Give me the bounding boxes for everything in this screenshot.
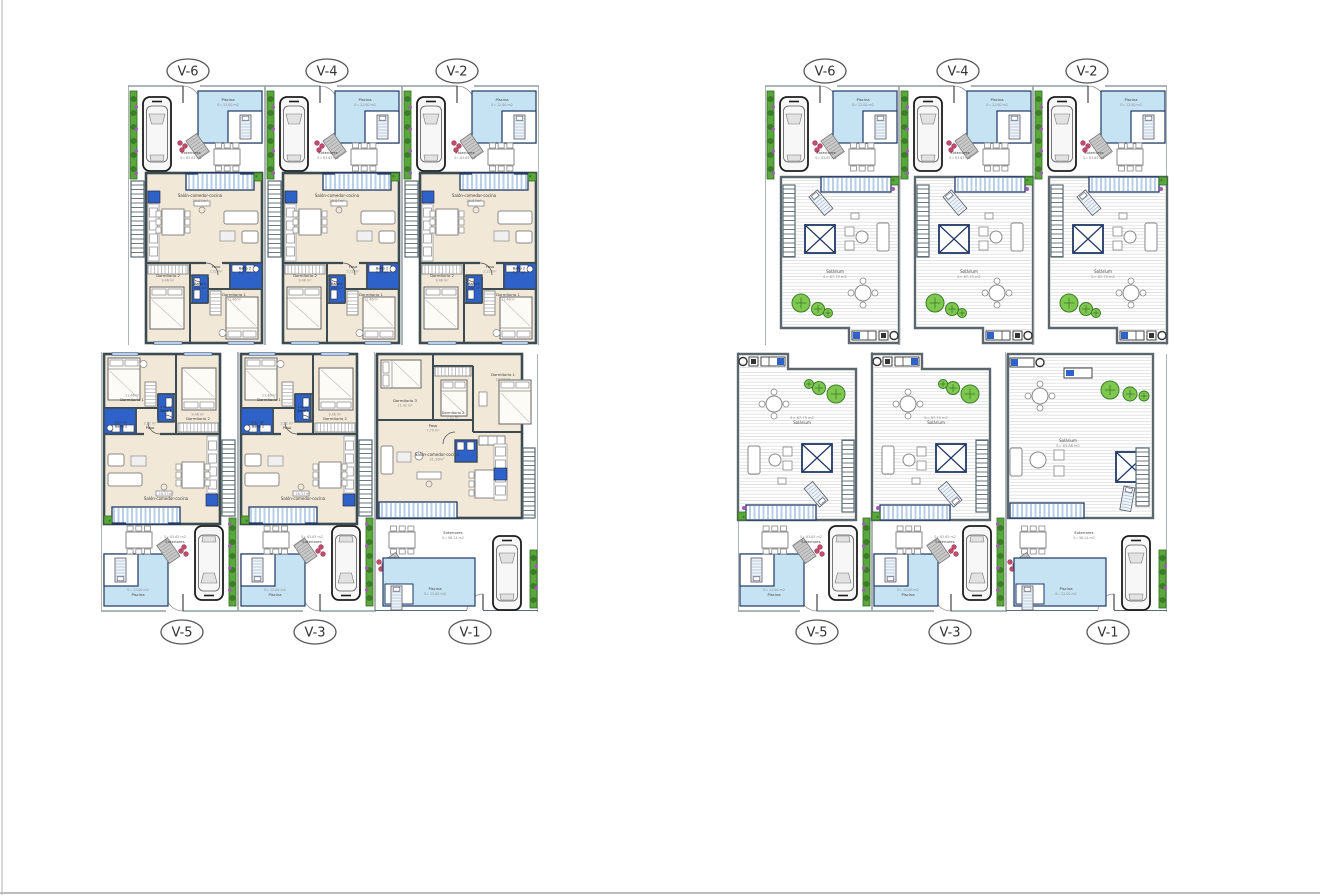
svg-text:2.17 m²: 2.17 m² (252, 421, 265, 425)
svg-text:S= 83.65 m2: S= 83.65 m2 (317, 156, 339, 160)
flowers-icon (179, 545, 189, 557)
pool (104, 554, 168, 606)
svg-text:Dormitorio 2: Dormitorio 2 (323, 416, 347, 421)
svg-text:S= 67.75 m2: S= 67.75 m2 (1091, 275, 1115, 279)
svg-text:2.17 m²: 2.17 m² (513, 271, 526, 275)
villa-V-5-solarium-plan: PiscinaS= 12.00 m2ExterioresS= 83.65 m2S… (738, 352, 872, 611)
bed-icon (499, 380, 531, 424)
hedge-plants (365, 518, 373, 606)
svg-text:Solárium: Solárium (927, 420, 945, 425)
villa-label-V-6-roof: V-6 (804, 59, 846, 83)
deck-band (955, 177, 1025, 192)
villa-label-V-2-roof: V-2 (1066, 59, 1108, 83)
svg-text:S= 67.75 m2: S= 67.75 m2 (924, 416, 948, 420)
planter-icon (241, 516, 249, 524)
svg-text:S= 12.00 m2: S= 12.00 m2 (354, 103, 376, 107)
svg-text:2.56 m²: 2.56 m² (331, 286, 344, 290)
svg-text:Dormitorio 2: Dormitorio 2 (442, 411, 465, 415)
svg-text:S= 12.00 m2: S= 12.00 m2 (1120, 103, 1142, 107)
svg-text:S= 12.00 m2: S= 12.00 m2 (127, 588, 149, 592)
svg-text:Paso: Paso (146, 425, 155, 430)
planter-icon (1025, 177, 1033, 185)
plant-icon (1060, 294, 1078, 312)
pergola-icon (936, 444, 966, 472)
svg-text:S= 12.00 m2: S= 12.00 m2 (264, 588, 286, 592)
svg-text:Paso: Paso (429, 423, 438, 428)
outdoor-dining-table (849, 143, 875, 171)
svg-text:11.42 m²: 11.42 m² (397, 404, 413, 408)
bed-icon (381, 360, 421, 388)
svg-text:Solárium: Solárium (960, 269, 978, 274)
villa-label-V-1-roof: V-1 (1087, 620, 1129, 644)
svg-text:Solárium: Solárium (1094, 269, 1112, 274)
stairs-icon (523, 448, 535, 518)
svg-text:26.57m²: 26.57m² (295, 492, 311, 496)
svg-text:2.22 m²: 2.22 m² (210, 270, 224, 274)
svg-text:Baño 2: Baño 2 (115, 425, 127, 429)
svg-text:2.22 m²: 2.22 m² (281, 422, 295, 426)
plant-icon (813, 382, 826, 395)
svg-text:S= 83.88 m2: S= 83.88 m2 (1056, 444, 1080, 448)
car-icon (780, 97, 808, 171)
svg-text:S= 12.00 m2: S= 12.00 m2 (897, 588, 919, 592)
svg-text:V-2: V-2 (1076, 65, 1097, 80)
floor-plan-sheet: PiscinaS= 12.00 m2ExterioresS= 83.65 m2S… (0, 0, 1320, 895)
hedge-plants (1035, 91, 1043, 179)
deck-band (249, 507, 317, 524)
svg-text:Exteriores: Exteriores (1084, 150, 1103, 155)
bed-icon (287, 287, 321, 329)
hedge-plants (1159, 550, 1167, 608)
svg-text:Exteriores: Exteriores (1074, 530, 1093, 535)
svg-text:S= 67.75 m2: S= 67.75 m2 (957, 275, 981, 279)
svg-text:12.47 m²: 12.47 m² (495, 378, 511, 382)
svg-text:Piscina: Piscina (901, 592, 914, 597)
svg-text:Dormitorio 1: Dormitorio 1 (222, 292, 246, 297)
svg-text:9.46 m²: 9.46 m² (162, 279, 176, 283)
car-icon (1048, 97, 1076, 171)
flowers-icon (815, 545, 825, 557)
svg-text:2.56 m²: 2.56 m² (468, 286, 481, 290)
villa-V-4-floor-plan: PiscinaS= 12.00 m2ExterioresS= 83.65 m2S… (265, 86, 402, 345)
villa-V-4-solarium-plan: PiscinaS= 12.00 m2ExterioresS= 83.65 m2S… (899, 86, 1033, 345)
hedge-plants (901, 91, 909, 179)
svg-text:S= 83.65 m2: S= 83.65 m2 (1083, 156, 1105, 160)
villa-label-V-3-floor: V-3 (294, 620, 336, 644)
svg-text:Exteriores: Exteriores (165, 539, 184, 544)
deck-band (379, 502, 457, 518)
car-icon (280, 97, 308, 171)
planter-icon (738, 512, 746, 520)
svg-text:Piscina: Piscina (358, 97, 371, 102)
svg-text:S= 83.65 m2: S= 83.65 m2 (934, 535, 956, 539)
svg-text:S= 98.24 m2: S= 98.24 m2 (442, 536, 464, 540)
svg-text:Salón-comedor-cocina: Salón-comedor-cocina (178, 193, 223, 198)
svg-text:Salón-comedor-cocina: Salón-comedor-cocina (452, 193, 497, 198)
hedge-plants (530, 550, 538, 608)
planter-icon (391, 173, 399, 181)
svg-text:Dormitorio 2: Dormitorio 2 (293, 273, 317, 278)
car-icon (332, 526, 360, 600)
svg-text:Piscina: Piscina (990, 97, 1003, 102)
svg-text:S= 83.65 m2: S= 83.65 m2 (164, 535, 186, 539)
stairs-icon (1136, 448, 1149, 506)
outdoor-dining-table (488, 143, 514, 171)
planter-icon (1159, 177, 1167, 185)
deck-band (746, 505, 816, 520)
outdoor-dining-table (126, 526, 152, 554)
stairs-icon (131, 181, 144, 257)
svg-text:7.51 m²: 7.51 m² (447, 416, 460, 420)
svg-text:2.56 m²: 2.56 m² (194, 286, 207, 290)
plant-icon (961, 385, 979, 403)
stairs-icon (783, 185, 795, 257)
svg-text:11.46m²: 11.46m² (125, 394, 140, 398)
svg-text:V-4: V-4 (947, 65, 968, 80)
car-icon (417, 97, 445, 171)
stairs-icon (268, 181, 281, 257)
svg-text:V-6: V-6 (814, 65, 835, 80)
svg-text:Exteriores: Exteriores (801, 539, 820, 544)
car-icon (143, 97, 171, 171)
hedge-plants (130, 91, 138, 179)
svg-text:Exteriores: Exteriores (816, 150, 835, 155)
plant-icon (958, 309, 967, 318)
svg-text:Piscina: Piscina (221, 97, 234, 102)
pergola-icon (802, 444, 832, 472)
svg-text:S= 12.00 m2: S= 12.00 m2 (763, 588, 785, 592)
hedge-plants (996, 518, 1004, 606)
flowers-icon (316, 545, 326, 557)
svg-text:Piscina: Piscina (268, 592, 281, 597)
svg-text:Salón-comedor-cocina: Salón-comedor-cocina (144, 496, 189, 501)
sun-lounger-icon (252, 558, 263, 582)
svg-text:S= 12.00 m2: S= 12.00 m2 (986, 103, 1008, 107)
svg-text:Dormitorio 2: Dormitorio 2 (186, 416, 210, 421)
svg-text:S= 83.65 m2: S= 83.65 m2 (180, 156, 202, 160)
villa-V-6-floor-plan: PiscinaS= 12.00 m2ExterioresS= 83.65 m2S… (128, 86, 265, 345)
svg-text:S= 67.75 m2: S= 67.75 m2 (823, 275, 847, 279)
planter-icon (104, 516, 112, 524)
svg-text:Dormitorio 1: Dormitorio 1 (359, 292, 383, 297)
svg-text:2.17 m²: 2.17 m² (376, 271, 389, 275)
deck-band (1089, 177, 1159, 192)
outdoor-dining-table (263, 526, 289, 554)
sun-lounger-icon (391, 586, 402, 610)
pergola-icon (939, 225, 969, 253)
deck-band (821, 177, 891, 192)
plant-icon (1123, 387, 1137, 401)
svg-text:Piscina: Piscina (428, 586, 441, 591)
svg-text:31.26m²: 31.26m² (429, 458, 445, 462)
plant-icon (812, 303, 825, 316)
car-icon (829, 526, 857, 600)
stairs-icon (976, 440, 988, 512)
villa-label-V-2-floor: V-2 (436, 59, 478, 83)
planter-icon (891, 177, 899, 185)
svg-text:Solárium: Solárium (1059, 438, 1077, 443)
svg-text:Salón-comedor-cocina: Salón-comedor-cocina (315, 193, 360, 198)
svg-text:Solárium: Solárium (826, 269, 844, 274)
villa-V-5-floor-plan: PiscinaS= 12.00 m2ExterioresS= 83.65 m2S… (101, 352, 238, 611)
planter-icon (528, 173, 536, 181)
svg-text:S= 12.00 m2: S= 12.00 m2 (217, 103, 239, 107)
car-icon (963, 526, 991, 600)
svg-text:26.57m²: 26.57m² (466, 199, 482, 203)
flowers-icon (949, 545, 959, 557)
svg-text:Dormitorio 1: Dormitorio 1 (120, 397, 144, 402)
svg-text:9.46 m²: 9.46 m² (436, 279, 450, 283)
svg-text:S= 83.65 m2: S= 83.65 m2 (800, 535, 822, 539)
car-icon (914, 97, 942, 171)
svg-text:9.46 m²: 9.46 m² (299, 279, 313, 283)
plant-icon (824, 309, 833, 318)
pool (874, 554, 938, 606)
villa-V-1-floor-plan: Dormitorio 311.42 m²Dormitorio 27.51 m²D… (375, 354, 538, 612)
svg-text:Solárium: Solárium (793, 420, 811, 425)
stairs-icon (842, 440, 854, 512)
pergola-icon (805, 225, 835, 253)
svg-text:Dormitorio 3: Dormitorio 3 (393, 398, 417, 403)
svg-text:Dormitorio 2: Dormitorio 2 (430, 273, 454, 278)
svg-text:7.79 m²: 7.79 m² (427, 429, 441, 433)
svg-text:26.57m²: 26.57m² (192, 199, 208, 203)
villa-label-V-5-roof: V-5 (796, 620, 838, 644)
svg-text:Dormitorio 2: Dormitorio 2 (156, 273, 180, 278)
svg-text:Piscina: Piscina (856, 97, 869, 102)
villa-V-3-floor-plan: PiscinaS= 12.00 m2ExterioresS= 83.65 m2S… (238, 352, 375, 611)
bed-icon (226, 297, 258, 339)
svg-text:2.56 m²: 2.56 m² (160, 405, 173, 409)
sun-lounger-icon (751, 558, 762, 582)
svg-text:Exteriores: Exteriores (443, 530, 462, 535)
svg-text:Exteriores: Exteriores (302, 539, 321, 544)
villa-V-2-solarium-plan: PiscinaS= 12.00 m2ExterioresS= 83.65 m2S… (1033, 86, 1167, 345)
plant-icon (1101, 381, 1119, 399)
deck-band (112, 507, 180, 524)
svg-text:Baño 1: Baño 1 (297, 409, 309, 413)
svg-text:V-2: V-2 (446, 65, 467, 80)
villa-label-V-4-roof: V-4 (937, 59, 979, 83)
sun-lounger-icon (514, 115, 525, 139)
svg-text:2.22 m²: 2.22 m² (347, 270, 361, 274)
svg-text:26.57m²: 26.57m² (158, 492, 174, 496)
plant-icon (827, 385, 845, 403)
villa-V-3-solarium-plan: PiscinaS= 12.00 m2ExterioresS= 83.65 m2S… (872, 352, 1006, 611)
svg-text:Salón-comedor-cocina: Salón-comedor-cocina (281, 496, 326, 501)
plant-icon (939, 380, 948, 389)
svg-text:2.17 m²: 2.17 m² (115, 421, 128, 425)
bed-icon (424, 287, 458, 329)
svg-text:Paso: Paso (349, 264, 358, 269)
svg-text:V-5: V-5 (806, 626, 827, 641)
stairs-icon (359, 440, 372, 516)
svg-text:Baño 2: Baño 2 (252, 425, 264, 429)
car-icon (493, 536, 521, 610)
deck-band (1010, 503, 1084, 518)
outdoor-dining-table (214, 143, 240, 171)
svg-text:11.46m²: 11.46m² (364, 298, 379, 302)
svg-text:S= 12.00 m2: S= 12.00 m2 (852, 103, 874, 107)
svg-text:Exteriores: Exteriores (181, 150, 200, 155)
plant-icon (805, 380, 814, 389)
svg-text:Exteriores: Exteriores (318, 150, 337, 155)
hedge-plants (404, 91, 412, 179)
svg-text:2.56 m²: 2.56 m² (297, 405, 310, 409)
architectural-plans-svg: PiscinaS= 12.00 m2ExterioresS= 83.65 m2S… (0, 0, 1320, 895)
sun-lounger-icon (240, 115, 251, 139)
hedge-plants (267, 91, 275, 179)
stairs-icon (405, 181, 418, 257)
outdoor-dining-table (762, 526, 788, 554)
svg-text:Exteriores: Exteriores (935, 539, 954, 544)
plant-icon (926, 294, 944, 312)
deck-band (323, 173, 391, 190)
outdoor-dining-table (1020, 526, 1046, 554)
outdoor-dining-table (389, 526, 415, 554)
svg-text:11.46m²: 11.46m² (501, 298, 516, 302)
sun-lounger-icon (1143, 115, 1154, 139)
bed-icon (319, 368, 353, 410)
svg-text:S= 83.65 m2: S= 83.65 m2 (815, 156, 837, 160)
svg-text:S= 83.65 m2: S= 83.65 m2 (949, 156, 971, 160)
planter-icon (254, 173, 262, 181)
stairs-icon (1051, 185, 1063, 257)
plant-icon (1139, 391, 1149, 401)
outdoor-dining-table (351, 143, 377, 171)
bed-icon (150, 287, 184, 329)
plant-icon (947, 382, 960, 395)
outdoor-dining-table (983, 143, 1009, 171)
svg-text:S= 12.00 m2: S= 12.00 m2 (424, 592, 446, 596)
stairs-icon (222, 440, 235, 516)
svg-text:2.22 m²: 2.22 m² (484, 270, 498, 274)
plant-icon (1092, 309, 1101, 318)
stairs-icon (917, 185, 929, 257)
svg-text:2.17 m²: 2.17 m² (239, 271, 252, 275)
svg-text:Exteriores: Exteriores (950, 150, 969, 155)
svg-text:S= 83.65 m2: S= 83.65 m2 (301, 535, 323, 539)
pergola-icon (1073, 225, 1103, 253)
sun-lounger-icon (885, 558, 896, 582)
svg-text:S= 98.24 m2: S= 98.24 m2 (1073, 536, 1095, 540)
svg-text:Piscina: Piscina (131, 592, 144, 597)
plant-icon (792, 294, 810, 312)
svg-text:V-3: V-3 (939, 626, 960, 641)
svg-text:Dormitorio 1: Dormitorio 1 (496, 292, 520, 297)
sun-lounger-icon (1022, 586, 1033, 610)
bed-icon (363, 297, 395, 339)
svg-text:Salón-comedor-cocina: Salón-comedor-cocina (415, 452, 460, 457)
planter-icon (872, 512, 880, 520)
svg-text:V-6: V-6 (177, 65, 198, 80)
svg-text:2.22 m²: 2.22 m² (144, 422, 158, 426)
villa-V-6-solarium-plan: PiscinaS= 12.00 m2ExterioresS= 83.65 m2S… (765, 86, 899, 345)
svg-text:Baño 1: Baño 1 (160, 409, 172, 413)
svg-text:V-1: V-1 (1097, 626, 1118, 641)
svg-text:Piscina: Piscina (1124, 97, 1137, 102)
villa-label-V-1-floor: V-1 (449, 620, 491, 644)
outdoor-dining-table (1117, 143, 1143, 171)
svg-text:S= 83.65 m2: S= 83.65 m2 (454, 156, 476, 160)
svg-text:V-3: V-3 (304, 626, 325, 641)
svg-text:Exteriores: Exteriores (455, 150, 474, 155)
svg-text:9.46 m²: 9.46 m² (192, 413, 206, 417)
villa-V-1-solarium-plan: SoláriumS= 83.88 m2ExterioresS= 98.24 m2… (1006, 354, 1167, 612)
plant-icon (1080, 303, 1093, 316)
pool (241, 554, 305, 606)
villa-label-V-4-floor: V-4 (306, 59, 348, 83)
hedge-plants (228, 518, 236, 606)
svg-text:Piscina: Piscina (767, 592, 780, 597)
hedge-plants (767, 91, 775, 179)
svg-text:Piscina: Piscina (495, 97, 508, 102)
bed-icon (500, 297, 532, 339)
villa-label-V-3-roof: V-3 (929, 620, 971, 644)
car-icon (1122, 536, 1150, 610)
outdoor-dining-table (896, 526, 922, 554)
villa-label-V-6-floor: V-6 (167, 59, 209, 83)
svg-text:Dormitorio 1: Dormitorio 1 (491, 372, 515, 377)
svg-text:11.46m²: 11.46m² (262, 394, 277, 398)
villa-V-2-floor-plan: PiscinaS= 12.00 m2ExterioresS= 83.65 m2S… (402, 86, 539, 345)
svg-text:Paso: Paso (486, 264, 495, 269)
sun-lounger-icon (1009, 115, 1020, 139)
svg-text:Piscina: Piscina (1059, 586, 1072, 591)
bed-icon (182, 368, 216, 410)
svg-text:Dormitorio 1: Dormitorio 1 (257, 397, 281, 402)
hedge-plants (862, 518, 870, 606)
sun-lounger-icon (875, 115, 886, 139)
car-icon (195, 526, 223, 600)
svg-text:S= 12.00 m2: S= 12.00 m2 (491, 103, 513, 107)
deck-band (460, 173, 528, 190)
svg-text:11.46m²: 11.46m² (227, 298, 242, 302)
svg-text:V-4: V-4 (316, 65, 337, 80)
sun-lounger-icon (115, 558, 126, 582)
svg-text:Paso: Paso (212, 264, 221, 269)
villa-label-V-5-floor: V-5 (161, 620, 203, 644)
svg-text:S= 12.00 m2: S= 12.00 m2 (1055, 592, 1077, 596)
deck-band (880, 505, 950, 520)
svg-text:Paso: Paso (283, 425, 292, 430)
svg-text:S= 67.75 m2: S= 67.75 m2 (790, 416, 814, 420)
sun-lounger-icon (377, 115, 388, 139)
pool (740, 554, 804, 606)
svg-text:V-1: V-1 (459, 626, 480, 641)
svg-text:V-5: V-5 (171, 626, 192, 641)
deck-band (186, 173, 254, 190)
svg-text:26.57m²: 26.57m² (329, 199, 345, 203)
svg-text:9.46 m²: 9.46 m² (329, 413, 343, 417)
plant-icon (946, 303, 959, 316)
